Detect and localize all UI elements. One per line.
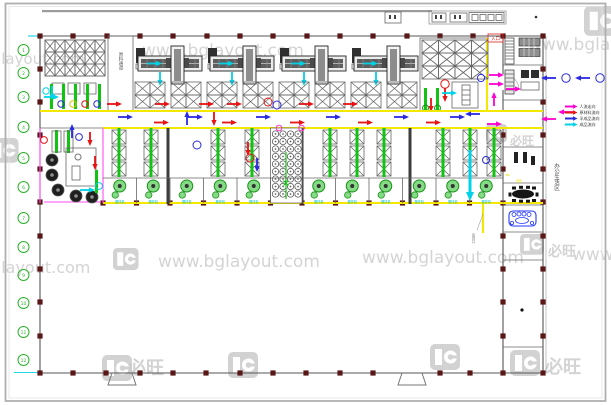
legend-item-finished-product: 成品流向: [565, 121, 596, 127]
svg-text:入口: 入口: [491, 36, 500, 42]
door-right: [398, 373, 426, 385]
grid-bubble: 8: [18, 242, 29, 253]
staircase: [505, 38, 514, 64]
watermark-url: www.bglayout.com: [0, 258, 90, 277]
svg-text:成品流向: 成品流向: [580, 121, 596, 127]
right-wing: ≈ m: [489, 38, 543, 347]
prep-equipment-row: [43, 83, 101, 109]
svg-text:m: m: [516, 178, 522, 185]
floor-drain-mark: [520, 308, 523, 311]
grid-axis-bubbles: 1 2 3 4 5 6 7 8 9 10 11 12: [18, 45, 29, 366]
watermark-brand: 必旺: [547, 243, 576, 260]
svg-text:6: 6: [22, 185, 25, 191]
grid-bubble: 7: [18, 213, 29, 224]
legend-item-raw-material: 原材料流向: [565, 109, 600, 115]
svg-text:5: 5: [22, 156, 25, 162]
svg-text:4: 4: [22, 125, 25, 131]
cad-plan-page: 搅拌机 www.bglayout.com www.bglayout.com ww…: [0, 0, 611, 405]
svg-text:11: 11: [21, 330, 27, 336]
svg-text:人流走向: 人流走向: [580, 103, 596, 109]
grid-bubble: 3: [18, 92, 29, 103]
roller-rack-section: [271, 125, 305, 203]
grid-bubble: 10: [18, 298, 29, 309]
machine-line-4: [351, 46, 418, 108]
watermark-brand: 必旺: [509, 133, 534, 148]
watermark-url: www.bglayout.com: [0, 50, 85, 68]
exit-note: 出货口: [471, 214, 483, 244]
grid-bubble: 2: [18, 68, 29, 79]
svg-text:12: 12: [21, 358, 27, 364]
vehicle: [509, 211, 536, 226]
watermark-url: www.bglayout.com: [158, 252, 320, 272]
watermark-url: www.bglayout.com: [362, 248, 524, 268]
corridor-room-label: 原料通道: [118, 52, 123, 72]
corridor-room: 原料通道: [108, 36, 133, 111]
factory-layout-drawing: 搅拌机 www.bglayout.com www.bglayout.com ww…: [0, 0, 611, 405]
svg-text:10: 10: [21, 301, 27, 307]
svg-text:2: 2: [22, 71, 25, 77]
meeting-table: [509, 186, 539, 203]
hall-finish-arrow: [466, 150, 490, 201]
grid-bubble: 11: [18, 327, 29, 338]
external-flow-arrows: [541, 74, 604, 82]
watermark-brand: 必旺: [544, 356, 581, 378]
svg-text:原材料流向: 原材料流向: [580, 109, 600, 115]
legend-item-semi-product: 半成品流向: [565, 115, 600, 121]
svg-text:出货口: 出货口: [471, 232, 476, 244]
svg-text:3: 3: [22, 95, 25, 101]
grid-bubble: 12: [18, 355, 29, 366]
grid-bubble: 6: [18, 182, 29, 193]
svg-text:半成品流向: 半成品流向: [580, 115, 600, 121]
top-auxiliary-blocks: [385, 11, 537, 24]
flow-legend: 人流走向 原材料流向 半成品流向 成品流向: [565, 103, 600, 127]
grid-bubble: 5: [18, 153, 29, 164]
legend-item-personnel: 人流走向: [565, 103, 596, 109]
svg-text:≈: ≈: [505, 172, 510, 179]
top-dimension-bar: [42, 10, 432, 12]
office-small-items: ≈ m: [505, 152, 535, 185]
svg-text:9: 9: [22, 273, 25, 279]
svg-text:8: 8: [22, 245, 25, 251]
tank-room: [40, 124, 103, 203]
grid-bubble: 4: [18, 122, 29, 133]
storage-rack-right-room: [420, 38, 488, 112]
building-walls: [14, 36, 546, 373]
svg-text:7: 7: [22, 216, 25, 222]
svg-text:1: 1: [22, 48, 25, 54]
right-wing-vertical-label: 办公生活区: [553, 162, 560, 191]
workstation-columns: [112, 128, 501, 177]
